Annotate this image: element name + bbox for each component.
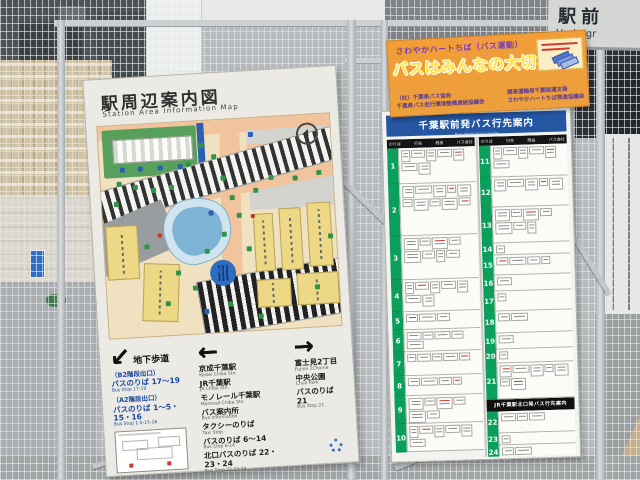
direction-column-station: ← 京成千葉駅 Keisei Chiba Stn. JR千葉駅 JR Chiba… xyxy=(197,335,293,476)
destination-chip xyxy=(405,282,414,294)
bus-row: 11 xyxy=(479,143,568,178)
destination-chip xyxy=(457,184,471,196)
bus-row: 18 xyxy=(484,309,573,334)
bus-row: 1 xyxy=(387,146,476,185)
destination-chip xyxy=(409,411,426,423)
destination-chip xyxy=(511,313,528,322)
destination-chip xyxy=(408,378,420,386)
destination-chip xyxy=(424,397,435,405)
org-right: 関東運輸局千葉陸運支局 さわやかハートちば推進協議会 xyxy=(507,84,585,105)
destination-chip xyxy=(408,398,423,410)
destination-chip xyxy=(498,313,510,321)
stop-number: 15 xyxy=(482,256,494,276)
down-left-arrow-icon: ↙ xyxy=(109,345,130,370)
row-cells xyxy=(404,350,482,376)
bus-stop-marker xyxy=(185,162,190,167)
bus-column-right: のりば 行先 経由 バス会社 1112131415161718192021JR千… xyxy=(479,134,576,456)
destination-chip xyxy=(554,363,568,375)
destination-chip xyxy=(413,199,428,211)
info-marker xyxy=(248,132,253,137)
bus-stop-marker xyxy=(328,233,333,238)
destination-chip xyxy=(549,178,563,190)
destination-chip xyxy=(458,197,470,205)
destination-chip xyxy=(499,335,514,343)
bus-stop-marker xyxy=(198,143,203,148)
stop-number: 14 xyxy=(482,244,493,256)
stop-number: 7 xyxy=(393,352,405,376)
bus-row: 6 xyxy=(392,328,481,353)
bus-row: 12 xyxy=(480,175,569,208)
row-cells xyxy=(406,422,484,452)
destination-chip xyxy=(432,353,442,361)
destination-chip xyxy=(539,178,548,186)
area-map xyxy=(96,112,342,340)
row-cells xyxy=(496,361,574,399)
bus-row: 13 xyxy=(481,205,570,244)
destination-chip xyxy=(502,435,511,443)
bus-row: 21 xyxy=(485,361,574,400)
pass-promo xyxy=(536,37,584,72)
destination-chip xyxy=(518,147,528,159)
stop-number: 19 xyxy=(484,334,495,350)
column-header: 経由 xyxy=(527,137,535,143)
bus-stop-marker xyxy=(114,202,119,207)
destination-chip xyxy=(453,148,464,160)
destination-chip xyxy=(496,257,508,265)
bus-stop-marker xyxy=(237,213,242,218)
column-header: バス会社 xyxy=(549,136,565,142)
destination-chip xyxy=(407,341,424,350)
row-cells xyxy=(490,143,568,177)
row-cells xyxy=(399,182,478,236)
column-header: のりば xyxy=(389,141,401,147)
bus-stop-marker xyxy=(211,154,216,159)
destination-chip xyxy=(495,222,512,234)
destination-chip xyxy=(501,413,516,421)
destination-chip xyxy=(497,277,512,285)
inset-corridor xyxy=(136,446,173,460)
destination-chip xyxy=(429,198,440,206)
bus-guide-table: のりば 行先 経由 バス会社 12345678910 のりば 行先 経由 バス会… xyxy=(387,134,576,459)
stop-number: 22 xyxy=(487,412,499,434)
destination-chip xyxy=(523,208,539,220)
destination-chip xyxy=(541,256,550,264)
destination-chip xyxy=(527,221,536,233)
destination-chip xyxy=(512,365,529,374)
bus-stop-marker xyxy=(169,185,174,190)
destination-chip xyxy=(461,424,472,436)
bus-stop-marker xyxy=(268,175,273,180)
fence-post xyxy=(57,20,65,480)
inset-exit-marker xyxy=(167,461,171,465)
destination-chip xyxy=(513,222,526,230)
bus-stop-marker xyxy=(176,270,181,275)
stop-number: 10 xyxy=(395,424,407,452)
bus-stop-marker xyxy=(193,285,198,290)
bus-guide-board: 千葉駅前発バス行先案内 Bus destination guide のりば 行先… xyxy=(381,105,581,462)
destination-chip xyxy=(436,397,452,409)
destination-chip xyxy=(404,238,419,250)
destination-chip xyxy=(437,313,450,321)
destination-chip xyxy=(418,162,430,174)
destination-chip xyxy=(406,314,418,322)
bus-stop-marker xyxy=(253,188,258,193)
destination-chip xyxy=(493,147,502,159)
bus-stop-marker xyxy=(228,301,233,306)
column-header: 経由 xyxy=(435,140,443,146)
destination-chip xyxy=(515,447,532,456)
destination-chip xyxy=(422,250,435,258)
destination-chip xyxy=(499,365,511,377)
destination-chip xyxy=(420,237,431,245)
stop-number: 24 xyxy=(488,446,499,457)
promo-text-line xyxy=(541,42,577,46)
destination-chip xyxy=(430,281,440,293)
destination-chip xyxy=(402,186,414,198)
destination-chip xyxy=(517,413,528,421)
info-marker xyxy=(120,168,125,173)
right-arrow-icon: → xyxy=(293,332,344,359)
bus-stop-marker xyxy=(205,249,210,254)
stop-number: 9 xyxy=(394,396,406,424)
bus-row: 4 xyxy=(391,278,480,313)
destination-chip xyxy=(525,178,538,190)
destination-chip xyxy=(422,331,433,339)
bus-row: 22 xyxy=(487,409,576,434)
destination-chip xyxy=(496,245,505,253)
destination-chip xyxy=(527,256,540,264)
direction-panel: ↙ 地下歩道 （B2階段出口） バスのりば 17～19 Bus Stop 17-… xyxy=(109,332,350,470)
bus-stop-marker xyxy=(220,176,225,181)
bus-column-left: のりば 行先 経由 バス会社 12345678910 xyxy=(387,137,484,459)
destination-chip xyxy=(447,185,456,193)
bus-stop-marker xyxy=(166,301,171,306)
info-marker xyxy=(138,166,143,171)
row-cells xyxy=(403,310,481,330)
destination-chip xyxy=(419,313,436,322)
row-cells xyxy=(405,394,483,424)
destination-chip xyxy=(494,179,506,191)
destination-chip xyxy=(426,149,436,161)
row-cells xyxy=(492,205,570,243)
destination-chip xyxy=(434,331,450,339)
bus-stop-marker xyxy=(144,244,149,249)
bus-stop-marker xyxy=(315,284,320,289)
row-cells xyxy=(405,374,483,396)
direction-column-park: → 富士見2丁目 Fujimi 2Chome 中央公園 Chuo Park バス… xyxy=(293,332,347,412)
bus-stop-marker xyxy=(133,185,138,190)
destination-chip xyxy=(421,377,438,386)
bus-row: 3 xyxy=(390,234,479,281)
destination-chip xyxy=(493,160,509,168)
destination-chip xyxy=(530,364,543,376)
bus-row: 15 xyxy=(482,253,571,276)
destination-chip xyxy=(453,377,462,385)
destination-chip xyxy=(415,282,429,290)
bus-stop-marker xyxy=(222,232,227,237)
destination-chip xyxy=(453,397,465,405)
destination-chip xyxy=(509,257,526,266)
city-logo xyxy=(329,438,344,453)
destination-chip xyxy=(544,364,553,372)
bus-row: 2 xyxy=(388,182,478,237)
destination-chip xyxy=(500,378,510,386)
photo-scene: 駅前 Undergr 駅周辺案内図 Station Area Informati… xyxy=(0,0,640,480)
bus-stop-marker xyxy=(151,188,156,193)
row-cells xyxy=(403,328,481,352)
info-marker xyxy=(158,165,163,170)
info-marker xyxy=(204,309,209,314)
bus-stop-marker xyxy=(117,182,122,187)
inset-corridor xyxy=(158,435,181,446)
stop-number: 6 xyxy=(392,330,404,352)
row-cells xyxy=(493,253,571,275)
stop-number: 5 xyxy=(392,312,404,330)
destination-chip xyxy=(404,251,421,263)
bus-row: 10 xyxy=(395,422,484,453)
destination-chip xyxy=(503,147,517,155)
destination-chip xyxy=(540,208,552,216)
row-cells xyxy=(398,146,476,184)
destination-chip xyxy=(495,209,510,221)
destination-chip xyxy=(449,237,461,245)
destination-chip xyxy=(443,353,458,361)
station-map-board: 駅周辺案内図 Station Area Information Map xyxy=(82,65,359,477)
alert-marker xyxy=(251,214,255,218)
info-marker xyxy=(178,164,183,169)
bus-stop-marker xyxy=(292,175,297,180)
bus-row: 7 xyxy=(393,350,482,377)
destination-chip xyxy=(409,426,418,438)
destination-chip xyxy=(497,293,506,301)
fence-post xyxy=(596,20,605,480)
destination-chip xyxy=(417,354,431,362)
destination-chip xyxy=(499,351,508,359)
column-header: のりば xyxy=(481,138,493,144)
direction-heading: 地下歩道 xyxy=(133,351,170,366)
destination-chip xyxy=(434,425,444,437)
row-cells xyxy=(494,289,572,311)
destination-chip xyxy=(502,447,514,455)
bus-stop-marker xyxy=(316,170,321,175)
map-markers xyxy=(97,113,342,340)
destination-chip xyxy=(401,150,410,162)
inset-title-line xyxy=(118,432,160,436)
direction-column-underground: ↙ 地下歩道 （B2階段出口） バスのりば 17～19 Bus Stop 17-… xyxy=(109,341,196,473)
column-header: 行先 xyxy=(414,140,422,146)
campaign-organizations: （社）千葉県バス協会 千葉県バス走行環境整備連絡協議会 関東運輸局千葉陸運支局 … xyxy=(396,84,585,111)
destination-chip xyxy=(451,331,463,339)
org-left: （社）千葉県バス協会 千葉県バス走行環境整備連絡協議会 xyxy=(396,90,485,111)
destination-chip xyxy=(529,412,545,420)
inset-exit-marker xyxy=(129,463,133,467)
destination-chip xyxy=(436,250,445,262)
row-cells xyxy=(495,309,573,333)
row-cells xyxy=(401,234,479,280)
info-marker xyxy=(218,268,223,273)
destination-chip xyxy=(441,281,456,289)
destination-chip xyxy=(439,377,452,385)
destination-chip xyxy=(402,199,412,207)
destination-chip xyxy=(441,198,457,210)
overhead-sign-ja: 駅前 xyxy=(558,2,640,30)
bus-campaign-banner: ♡ さわやかハートちば（バス運動） バスはみんなの大切な足 （社）千葉県バス協会… xyxy=(386,29,590,117)
destination-chip xyxy=(410,439,426,447)
destination-chip xyxy=(407,354,416,362)
stop-number: 8 xyxy=(394,376,406,396)
stop-number: 23 xyxy=(487,434,498,446)
stop-number: 17 xyxy=(483,292,495,312)
alert-marker xyxy=(158,233,162,237)
destination-chip xyxy=(411,150,425,158)
destination-chip xyxy=(507,179,524,188)
bus-row: 24 xyxy=(488,443,576,457)
destination-chip xyxy=(445,425,460,433)
destination-chip xyxy=(405,295,421,303)
destination-chip xyxy=(427,410,440,418)
bus-row: 17 xyxy=(483,289,572,312)
destination-chip xyxy=(529,146,544,154)
destination-chip xyxy=(406,332,421,340)
destination-chip xyxy=(437,149,452,157)
destination-chip xyxy=(419,425,433,433)
direction-line-en: Bus Stop 21 xyxy=(297,403,347,411)
column-header: 行先 xyxy=(506,137,514,143)
row-cells xyxy=(491,175,569,207)
bus-row: 8 xyxy=(394,374,483,397)
bus-stop-marker xyxy=(247,246,252,251)
destination-chip xyxy=(446,250,460,258)
bus-stop-marker xyxy=(230,195,235,200)
stop-number: 16 xyxy=(483,276,494,292)
stop-number: 12 xyxy=(480,178,492,208)
destination-chip xyxy=(401,163,417,171)
destination-chip xyxy=(511,378,526,390)
destination-chip xyxy=(432,237,448,249)
stop-number: 20 xyxy=(485,350,496,364)
destination-chip xyxy=(545,146,556,158)
row-cells xyxy=(402,278,480,312)
bus-stop-marker xyxy=(259,314,264,319)
underground-inset-map xyxy=(114,427,188,473)
row-cells xyxy=(498,409,576,433)
destination-chip xyxy=(433,185,446,197)
destination-chip xyxy=(415,185,432,194)
stop-number: 4 xyxy=(391,280,403,312)
destination-chip xyxy=(459,352,470,360)
bus-row: 9 xyxy=(394,394,483,425)
info-marker xyxy=(208,210,213,215)
destination-chip xyxy=(422,294,434,306)
destination-chip xyxy=(457,280,468,292)
stop-number: 18 xyxy=(484,312,496,334)
row-cells xyxy=(499,443,576,457)
destination-chip xyxy=(511,209,522,217)
column-header: バス会社 xyxy=(457,139,473,145)
